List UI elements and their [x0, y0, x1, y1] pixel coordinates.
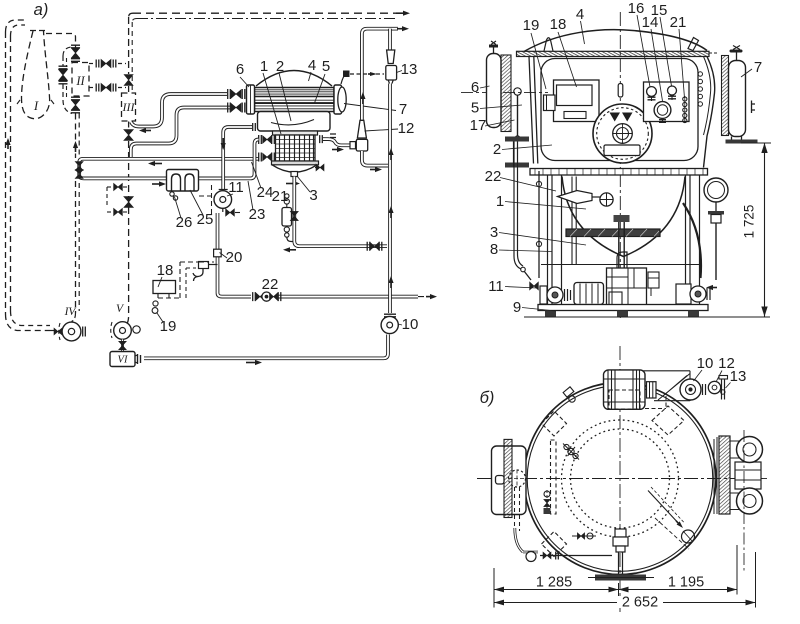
svg-text:7: 7	[754, 59, 762, 76]
svg-text:5: 5	[471, 100, 479, 117]
svg-text:22: 22	[485, 168, 502, 185]
svg-text:1: 1	[496, 193, 504, 210]
svg-text:2: 2	[276, 58, 284, 75]
svg-text:3: 3	[309, 187, 317, 204]
svg-text:1: 1	[260, 58, 268, 75]
svg-text:23: 23	[249, 206, 266, 223]
svg-text:a): a)	[34, 1, 49, 19]
svg-text:13: 13	[401, 61, 418, 78]
svg-text:1 195: 1 195	[668, 575, 704, 591]
svg-text:12: 12	[398, 120, 415, 137]
svg-text:21: 21	[670, 14, 687, 31]
svg-text:21: 21	[272, 188, 289, 205]
svg-text:11: 11	[228, 179, 244, 196]
svg-text:4: 4	[308, 57, 316, 74]
svg-text:20: 20	[226, 249, 243, 266]
svg-text:18: 18	[550, 16, 567, 33]
svg-text:10: 10	[402, 316, 419, 333]
svg-text:18: 18	[157, 262, 174, 279]
svg-text:б): б)	[480, 389, 495, 407]
svg-text:2 652: 2 652	[622, 595, 658, 611]
svg-text:11: 11	[488, 278, 504, 295]
svg-text:6: 6	[236, 61, 244, 78]
svg-text:I: I	[33, 98, 39, 113]
svg-text:17: 17	[470, 117, 487, 134]
svg-text:22: 22	[262, 276, 279, 293]
svg-text:8: 8	[490, 241, 498, 258]
svg-text:III: III	[122, 100, 136, 114]
svg-text:VI: VI	[118, 355, 128, 366]
svg-text:19: 19	[523, 17, 540, 34]
svg-text:26: 26	[176, 214, 193, 231]
svg-text:4: 4	[576, 6, 584, 23]
svg-text:24: 24	[257, 184, 274, 201]
svg-text:9: 9	[513, 299, 521, 316]
svg-text:10: 10	[697, 355, 714, 372]
svg-text:6: 6	[471, 79, 479, 96]
svg-text:14: 14	[642, 14, 659, 31]
svg-text:2: 2	[493, 141, 501, 158]
svg-text:5: 5	[322, 58, 330, 75]
svg-text:25: 25	[197, 211, 214, 228]
svg-text:13: 13	[730, 368, 747, 385]
svg-text:1 725: 1 725	[742, 205, 757, 239]
svg-text:3: 3	[490, 224, 498, 241]
svg-text:7: 7	[399, 101, 407, 118]
svg-text:II: II	[75, 74, 85, 88]
svg-text:1 285: 1 285	[536, 575, 572, 591]
